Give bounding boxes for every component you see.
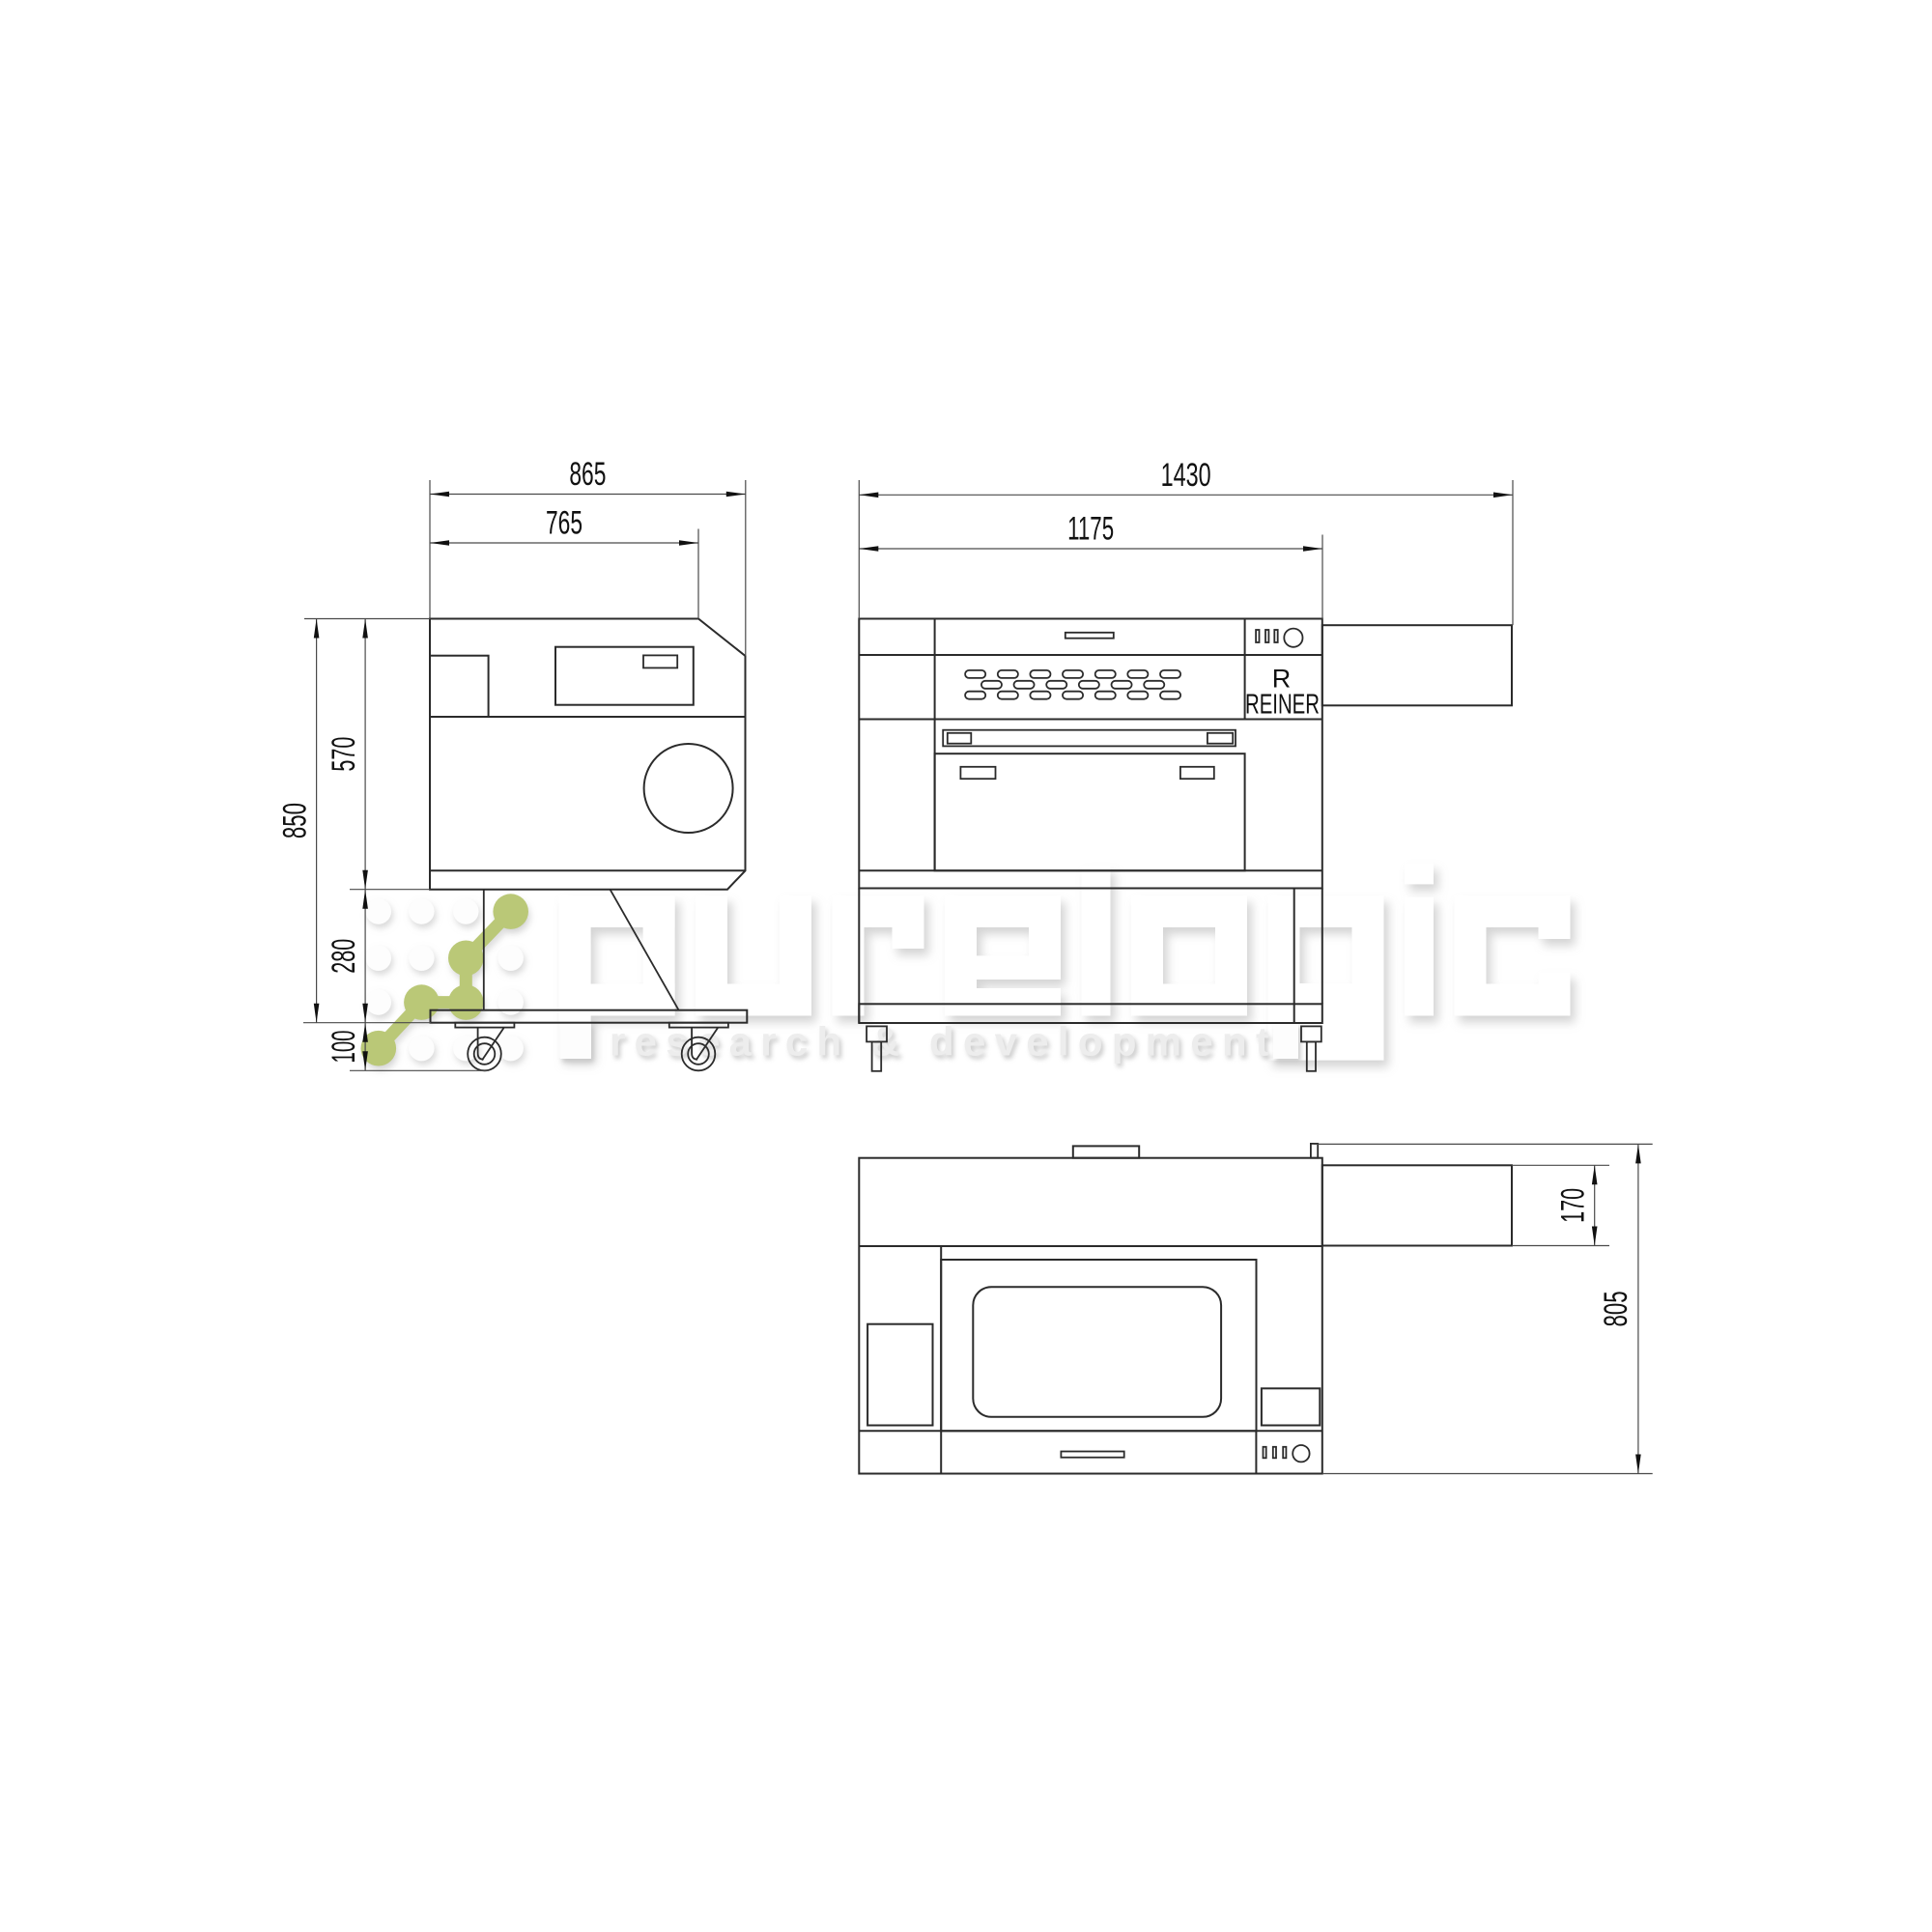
svg-text:865: 865 — [569, 456, 606, 493]
svg-text:1430: 1430 — [1161, 457, 1211, 494]
svg-text:1175: 1175 — [1067, 511, 1114, 548]
svg-text:170: 170 — [1555, 1188, 1592, 1223]
svg-text:765: 765 — [546, 505, 582, 542]
svg-text:805: 805 — [1598, 1291, 1634, 1326]
svg-text:REINER: REINER — [1245, 690, 1320, 721]
svg-text:100: 100 — [326, 1031, 362, 1064]
svg-text:570: 570 — [326, 737, 362, 772]
svg-text:280: 280 — [326, 939, 362, 974]
svg-text:850: 850 — [277, 803, 314, 838]
